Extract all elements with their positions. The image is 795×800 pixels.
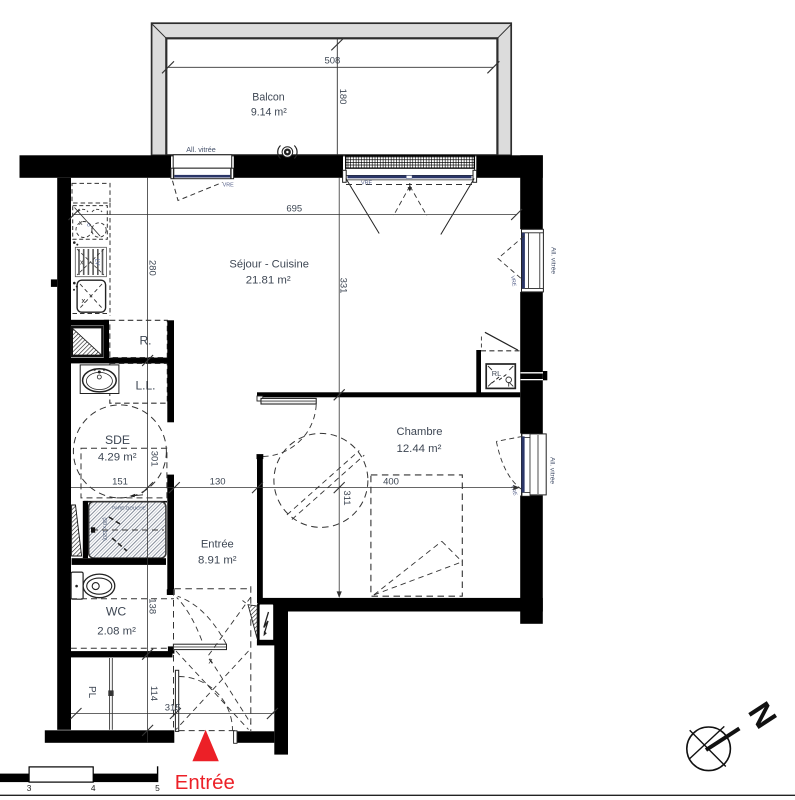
svg-text:280: 280 bbox=[147, 260, 158, 276]
svg-text:114: 114 bbox=[148, 686, 159, 701]
svg-text:5: 5 bbox=[155, 783, 160, 793]
svg-text:PARE-DOUCHE: PARE-DOUCHE bbox=[112, 505, 146, 510]
svg-text:RL: RL bbox=[492, 369, 501, 378]
svg-text:All. vitrée: All. vitrée bbox=[186, 145, 216, 154]
svg-text:138: 138 bbox=[147, 598, 158, 614]
svg-text:331: 331 bbox=[338, 278, 349, 294]
svg-text:508: 508 bbox=[324, 56, 340, 67]
svg-text:130: 130 bbox=[210, 477, 226, 488]
svg-text:PL: PL bbox=[86, 686, 97, 699]
svg-text:All. vitrée: All. vitrée bbox=[549, 457, 556, 484]
svg-text:4.29 m²: 4.29 m² bbox=[98, 451, 137, 463]
svg-text:8.91 m²: 8.91 m² bbox=[198, 555, 237, 567]
svg-text:Entrée: Entrée bbox=[201, 538, 234, 550]
svg-text:3: 3 bbox=[27, 783, 32, 793]
svg-text:VRE: VRE bbox=[223, 183, 234, 189]
svg-text:SDE: SDE bbox=[105, 433, 130, 447]
svg-text:WC: WC bbox=[106, 605, 127, 619]
svg-text:x: x bbox=[209, 657, 213, 666]
svg-text:Balcon: Balcon bbox=[252, 91, 284, 103]
svg-text:12.44 m²: 12.44 m² bbox=[397, 443, 442, 455]
svg-text:21.81 m²: 21.81 m² bbox=[246, 274, 291, 286]
svg-text:Entrée: Entrée bbox=[175, 772, 235, 794]
svg-text:2.08 m²: 2.08 m² bbox=[97, 625, 136, 637]
svg-text:x: x bbox=[79, 220, 83, 227]
svg-text:180: 180 bbox=[337, 89, 348, 105]
svg-text:Séjour - Cuisine: Séjour - Cuisine bbox=[229, 258, 309, 270]
svg-text:(90 x 120): (90 x 120) bbox=[101, 517, 107, 541]
svg-text:695: 695 bbox=[286, 204, 302, 215]
svg-text:151: 151 bbox=[112, 477, 128, 488]
svg-text:o: o bbox=[87, 223, 90, 229]
svg-text:L.L.: L.L. bbox=[136, 379, 156, 393]
svg-text:400: 400 bbox=[383, 477, 399, 488]
svg-text:x: x bbox=[82, 296, 86, 305]
svg-text:R.: R. bbox=[140, 334, 152, 348]
svg-text:4: 4 bbox=[91, 783, 96, 793]
svg-text:311: 311 bbox=[341, 490, 352, 505]
svg-text:301: 301 bbox=[149, 451, 160, 467]
svg-text:All. vitrée: All. vitrée bbox=[550, 247, 557, 274]
svg-text:Chambre: Chambre bbox=[396, 426, 442, 438]
svg-text:VRE: VRE bbox=[361, 180, 372, 186]
svg-text:9.14 m²: 9.14 m² bbox=[251, 107, 287, 119]
svg-text:315: 315 bbox=[165, 703, 181, 714]
svg-text:x: x bbox=[80, 260, 84, 267]
svg-text:LV: LV bbox=[94, 259, 100, 266]
